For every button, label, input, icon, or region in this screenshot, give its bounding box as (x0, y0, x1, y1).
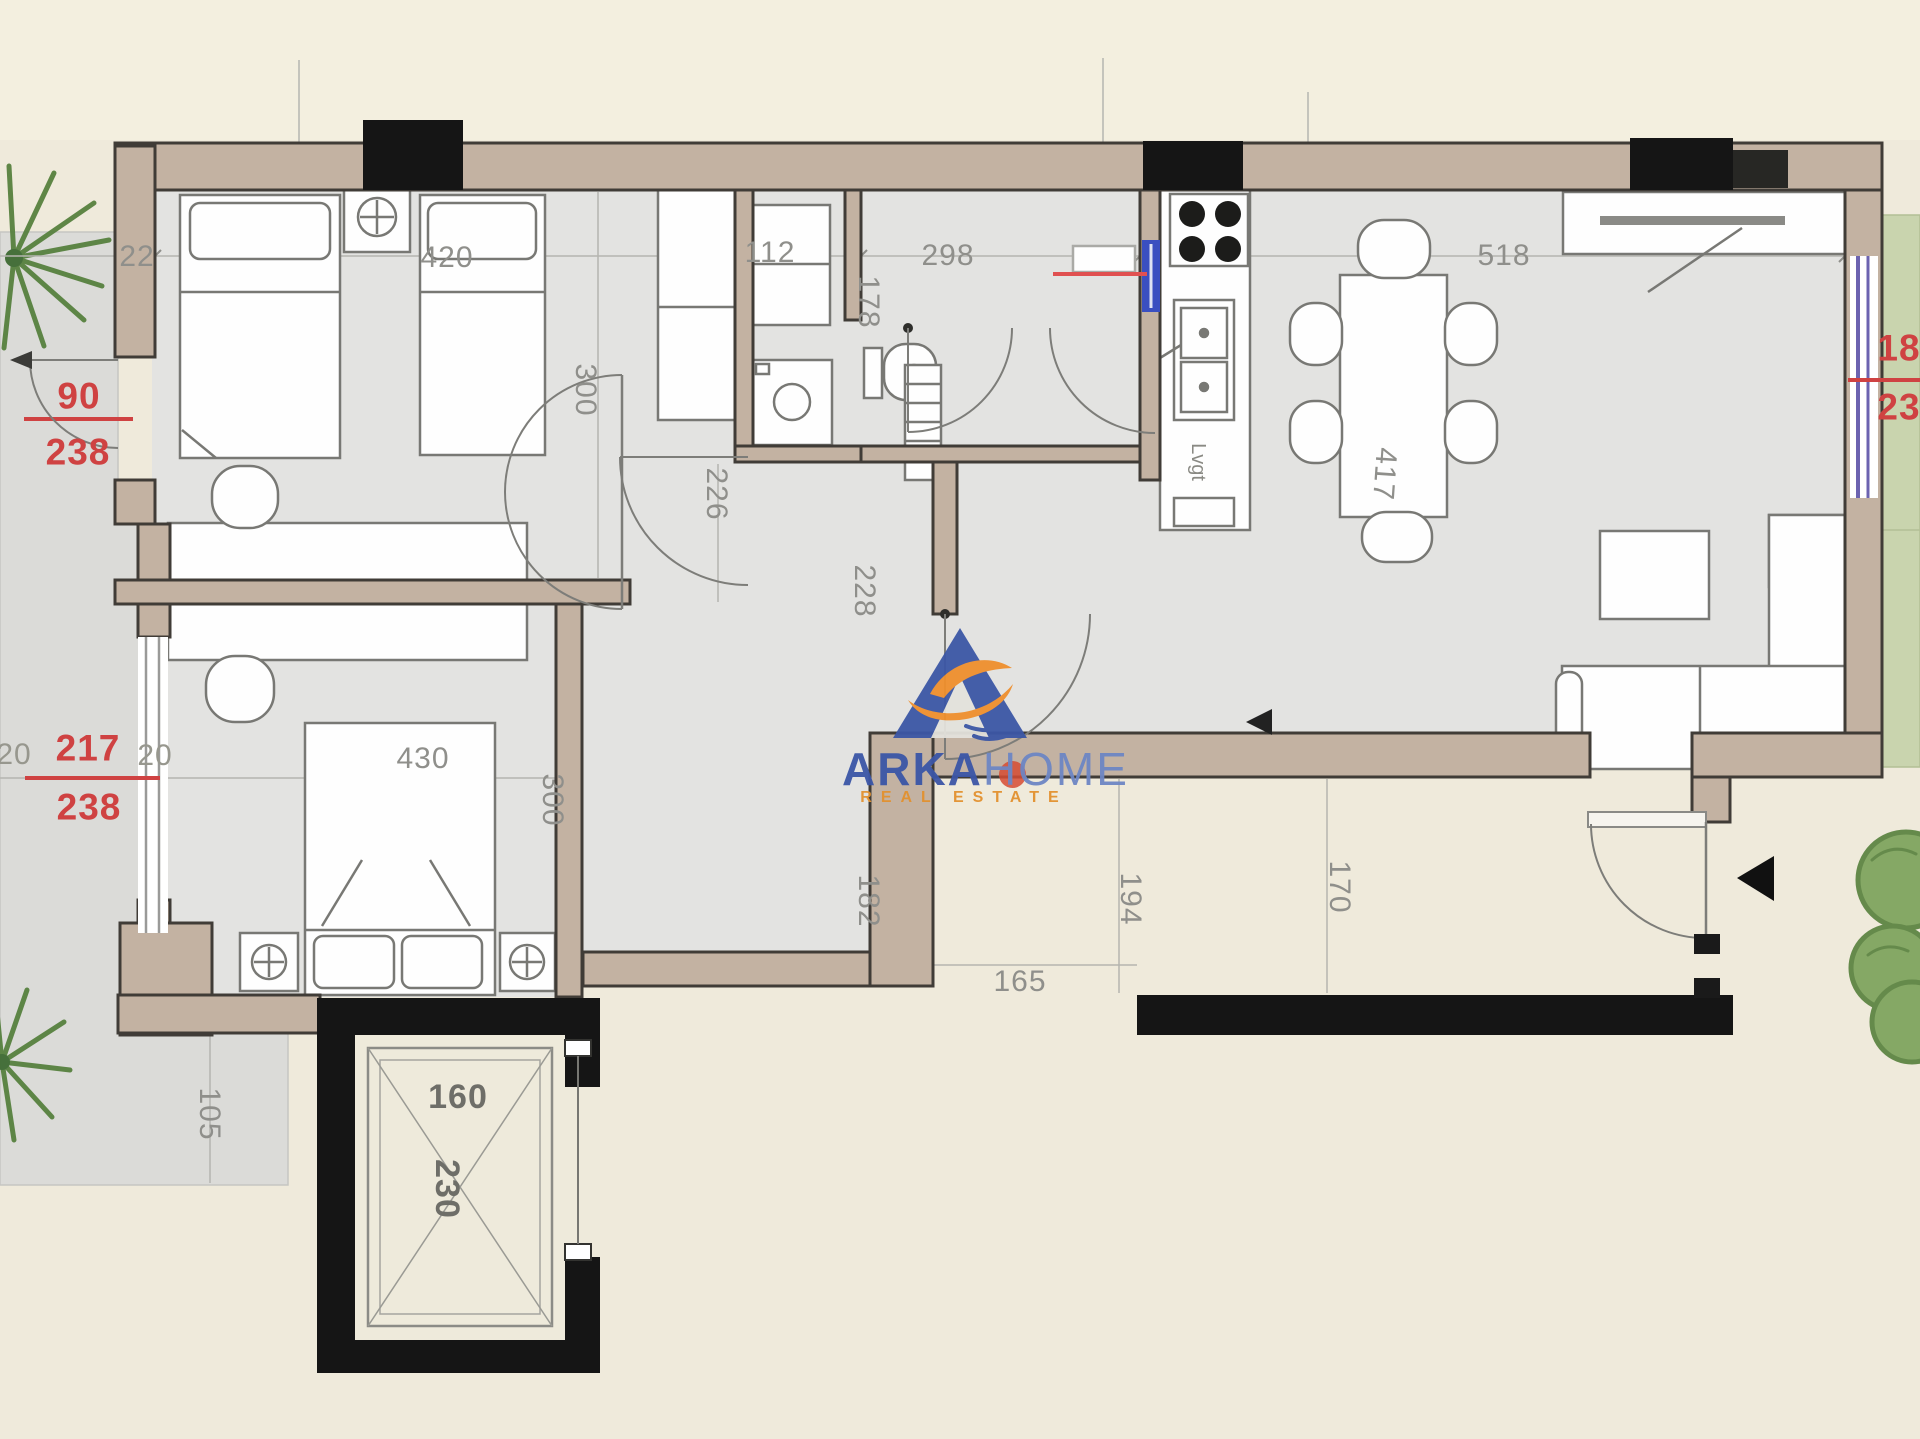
nightstand-right (500, 933, 555, 991)
dim-bedroom2-depth: 300 (537, 773, 567, 826)
washing-machine (752, 360, 832, 445)
watermark-brand-arka: ARKA (842, 743, 983, 795)
dim-middle-width: 298 (921, 241, 974, 271)
red-dim-right-width: 18 (1877, 330, 1920, 367)
arka-boat-logo-icon (890, 622, 1030, 744)
red-dim-door-height: 238 (46, 434, 111, 471)
dim-living-width: 518 (1477, 241, 1530, 271)
dim-corridor-width: 226 (701, 467, 731, 520)
twin-bed-2 (420, 195, 545, 455)
wardrobe-tall (658, 190, 735, 420)
watermark-brand-home: HOME (983, 743, 1129, 795)
red-dim-door-width: 90 (57, 378, 100, 415)
dim-bedroom1-depth: 300 (570, 363, 600, 416)
dim-hall-depth: 228 (849, 564, 879, 617)
dim-opening: 165 (993, 967, 1046, 997)
dim-top-wall: 22 (119, 242, 154, 272)
watermark-brand: ARKAHOME (842, 746, 1086, 792)
dim-entry-right: 170 (1324, 860, 1354, 913)
dim-bathroom-width: 112 (745, 238, 796, 268)
dim-win-margin-b: 20 (137, 741, 172, 771)
dim-shaft-depth: 230 (430, 1159, 464, 1219)
garden-strip (1882, 215, 1920, 767)
floor-plan-page: 22 420 112 298 518 300 178 226 228 300 4… (0, 0, 1920, 1439)
dim-win-margin-a: 20 (0, 740, 32, 770)
red-dim-right-height: 23 (1877, 389, 1920, 426)
dim-table: 417 (1367, 446, 1401, 501)
wall-partition-bedrooms (115, 580, 630, 604)
coffee-table (1600, 531, 1709, 619)
dim-bath-depth: 178 (853, 275, 883, 328)
kitchen-sink-label: Lvgt (1188, 443, 1208, 481)
dim-shaft-width: 160 (428, 1080, 488, 1114)
party-wall (1137, 995, 1733, 1035)
watermark-tagline: REAL ESTATE (842, 790, 1086, 806)
dim-bedroom2-width: 430 (396, 744, 449, 774)
boiler (1073, 246, 1135, 272)
stove (1170, 194, 1248, 266)
twin-bed-1 (180, 195, 340, 458)
red-dim-window-height: 238 (57, 789, 122, 826)
dim-bedroom1-width: 420 (420, 243, 473, 273)
top-band (0, 0, 1920, 140)
dim-terrace-edge: 105 (194, 1087, 224, 1140)
red-dim-window-width: 217 (56, 730, 121, 767)
dim-hall-lower: 182 (853, 874, 883, 927)
window-right (1850, 256, 1878, 498)
kitchen-cabinet (1174, 498, 1234, 526)
nightstand (344, 188, 410, 252)
nightstand-left (240, 933, 298, 991)
dim-entry-left: 194 (1115, 872, 1145, 925)
